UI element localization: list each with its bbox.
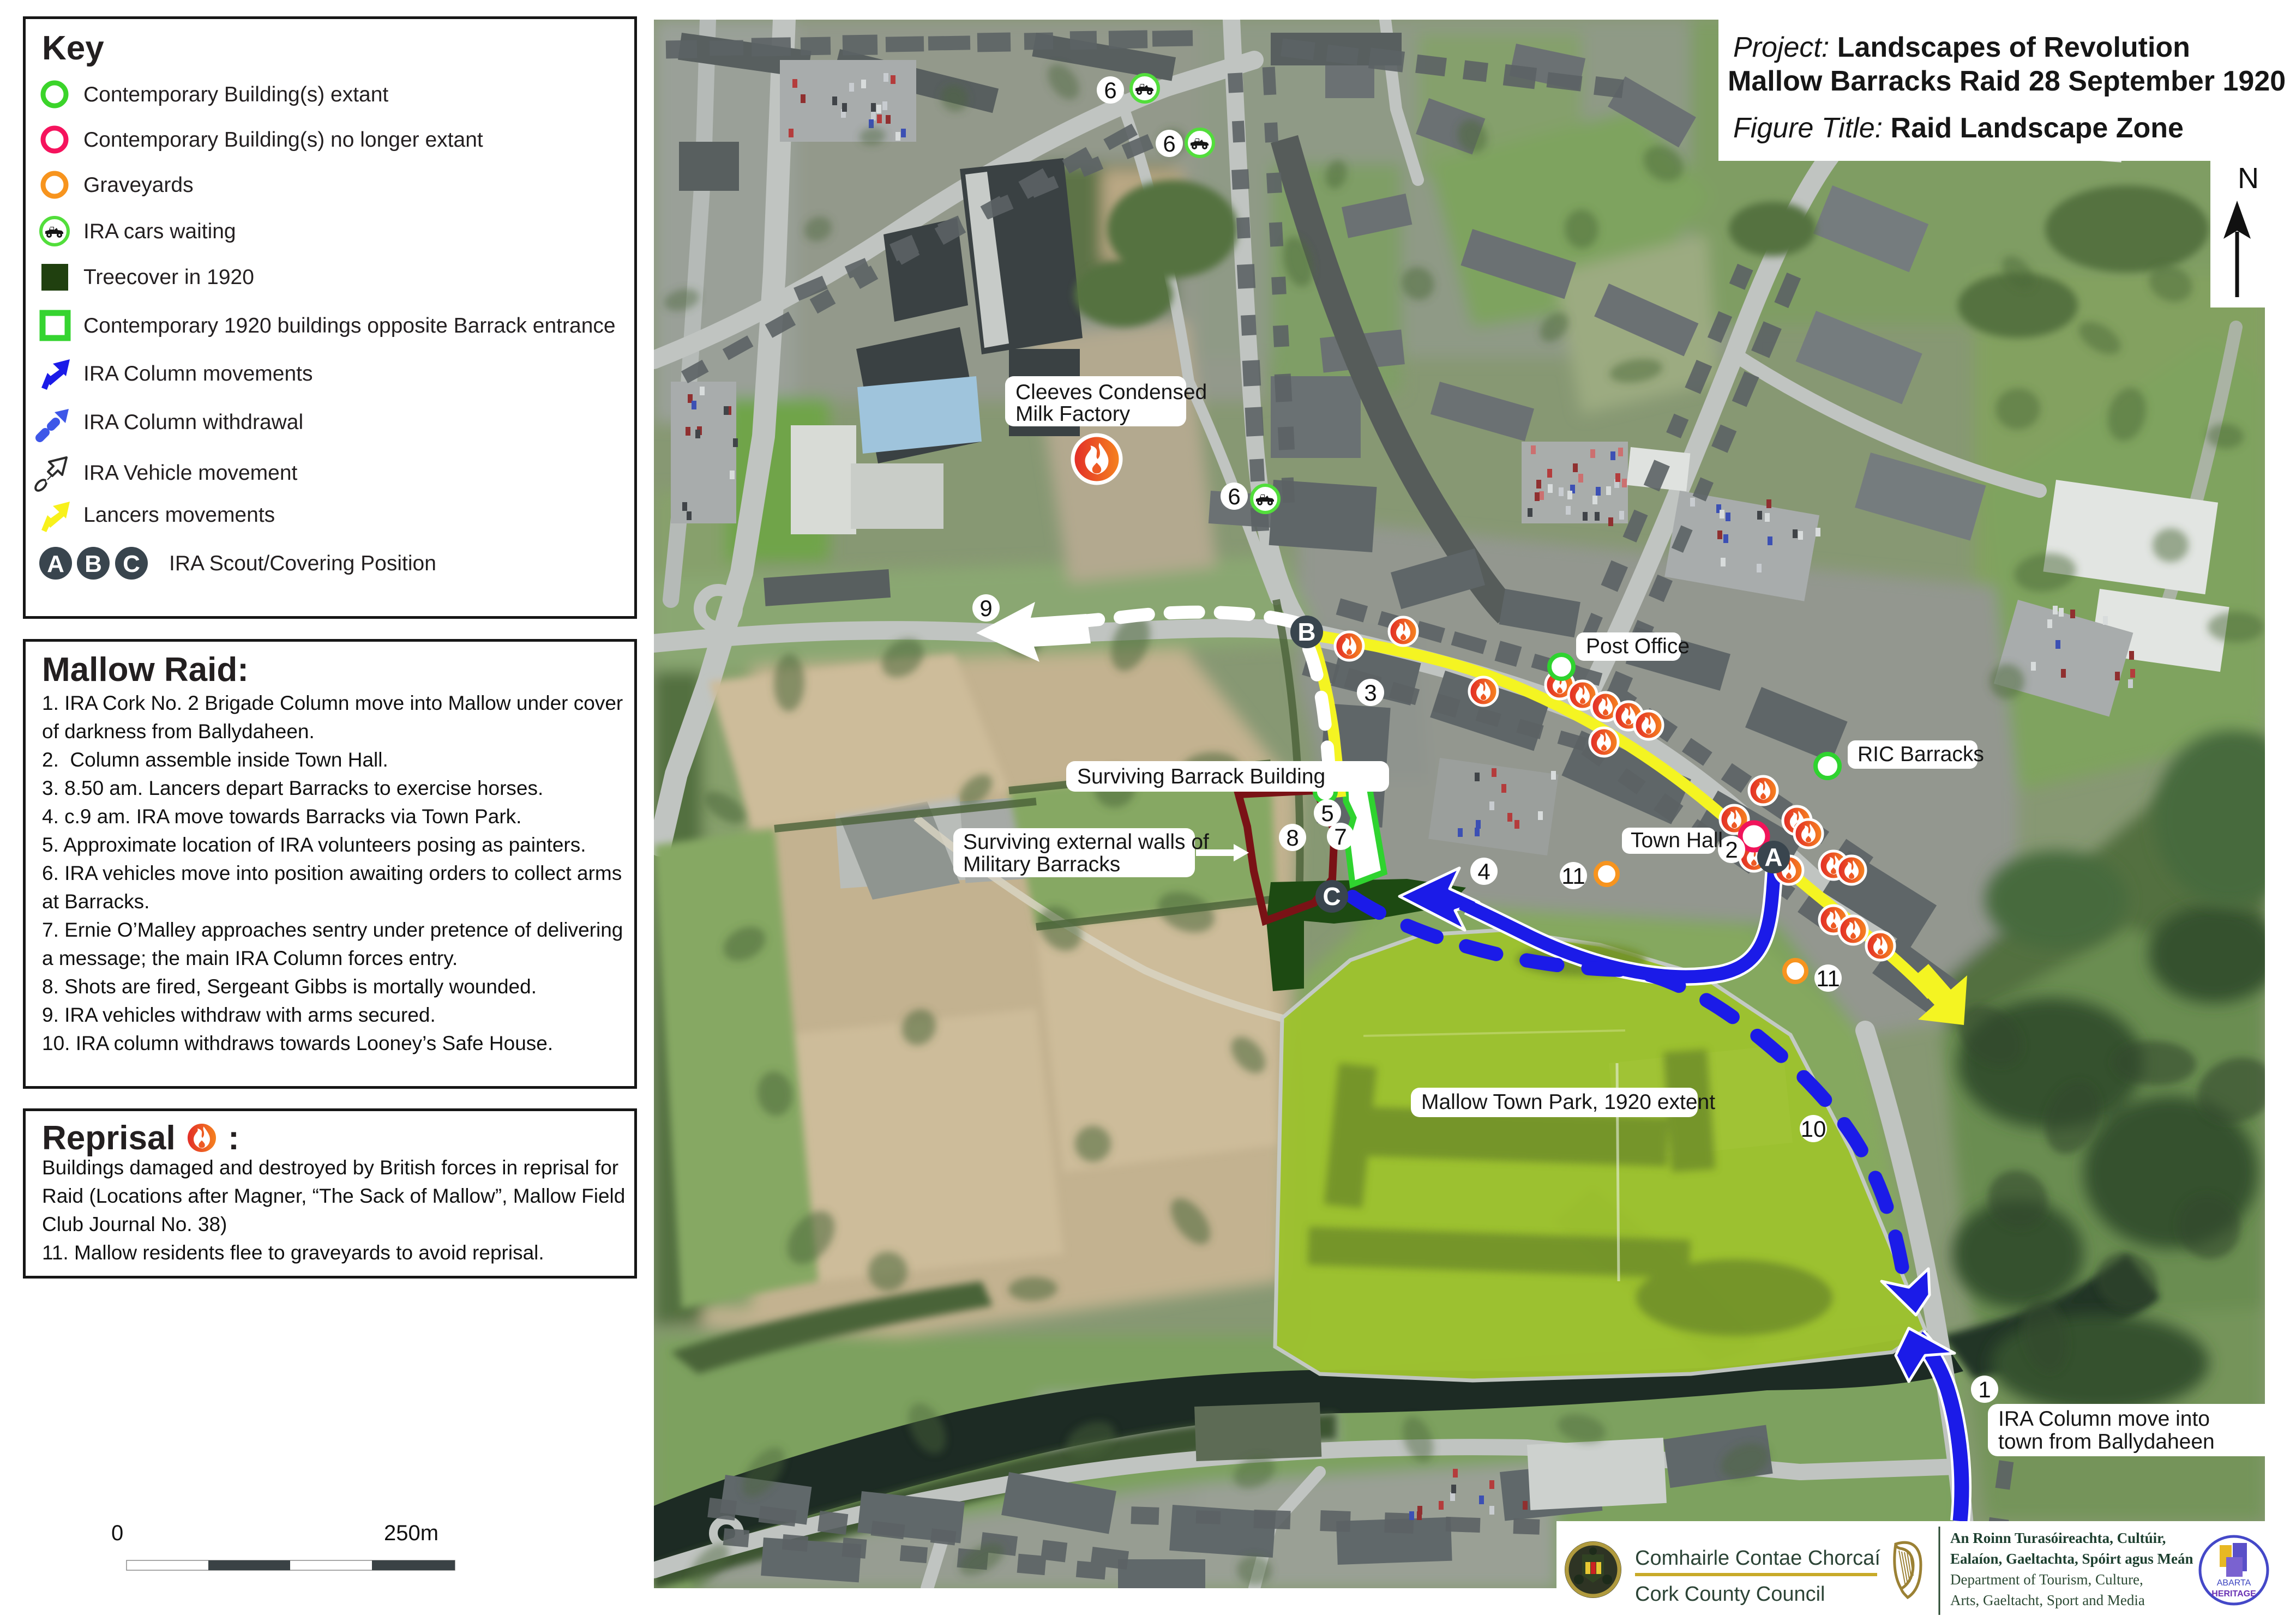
svg-text:C: C (123, 551, 140, 577)
svg-text:Project: Landscapes of Revolut: Project: Landscapes of Revolution (1733, 32, 2190, 63)
svg-text:9: 9 (979, 595, 992, 621)
svg-text:11: 11 (1561, 863, 1585, 889)
svg-text:Figure Title: Raid Landscape Z: Figure Title: Raid Landscape Zone (1733, 112, 2184, 144)
svg-text:5: 5 (1321, 800, 1333, 826)
svg-text:Arts, Gaeltacht, Sport and Med: Arts, Gaeltacht, Sport and Media (1950, 1592, 2145, 1608)
svg-text:Mallow Barracks Raid 28 Septem: Mallow Barracks Raid 28 September 1920 (1728, 65, 2286, 97)
svg-text:A: A (47, 551, 64, 577)
svg-text:N: N (2238, 162, 2259, 195)
svg-text:6: 6 (1228, 484, 1240, 509)
svg-text:Mallow Town Park, 1920 extent: Mallow Town Park, 1920 extent (1421, 1090, 1715, 1114)
svg-text:4: 4 (1477, 859, 1490, 884)
svg-text:Comhairle Contae Chorcaí: Comhairle Contae Chorcaí (1635, 1547, 1880, 1570)
svg-text:Cleeves Condensed: Cleeves Condensed (1015, 381, 1207, 404)
svg-text:Cork County Council: Cork County Council (1635, 1583, 1825, 1606)
svg-text:B: B (1297, 618, 1315, 646)
svg-text:Surviving Barrack Building: Surviving Barrack Building (1077, 765, 1325, 788)
svg-text:3: 3 (1364, 680, 1377, 706)
svg-text:C: C (1323, 882, 1341, 911)
svg-text:6: 6 (1163, 131, 1175, 156)
svg-text:Department of Tourism, Culture: Department of Tourism, Culture, (1950, 1571, 2143, 1588)
svg-text:RIC Barracks: RIC Barracks (1858, 743, 1984, 766)
svg-text:1: 1 (1978, 1377, 1991, 1402)
svg-text:town from Ballydaheen: town from Ballydaheen (1998, 1430, 2215, 1454)
svg-text:11: 11 (1816, 966, 1840, 991)
svg-text:Military Barracks: Military Barracks (963, 853, 1120, 876)
svg-text:8: 8 (1286, 825, 1299, 851)
svg-text:An Roinn Turasóireachta, Cultú: An Roinn Turasóireachta, Cultúir, (1950, 1530, 2166, 1546)
svg-text:ABARTA: ABARTA (2217, 1578, 2251, 1588)
svg-text:Milk Factory: Milk Factory (1015, 402, 1131, 426)
svg-text:HERITAGE: HERITAGE (2211, 1589, 2256, 1599)
svg-text:7: 7 (1334, 824, 1347, 849)
svg-text:B: B (85, 551, 102, 577)
svg-text:Ealaíon, Gaeltachta, Spóirt ag: Ealaíon, Gaeltachta, Spóirt agus Meán (1950, 1551, 2193, 1567)
svg-text:10: 10 (1801, 1116, 1826, 1142)
svg-text:Post Office: Post Office (1586, 635, 1690, 658)
svg-text:2: 2 (1725, 837, 1738, 863)
svg-text:A: A (1764, 843, 1782, 871)
svg-text:IRA Column move into: IRA Column move into (1998, 1407, 2210, 1431)
svg-text:Surviving external walls of: Surviving external walls of (963, 830, 1209, 854)
svg-text:6: 6 (1104, 77, 1116, 103)
svg-text:Town Hall: Town Hall (1631, 829, 1723, 852)
